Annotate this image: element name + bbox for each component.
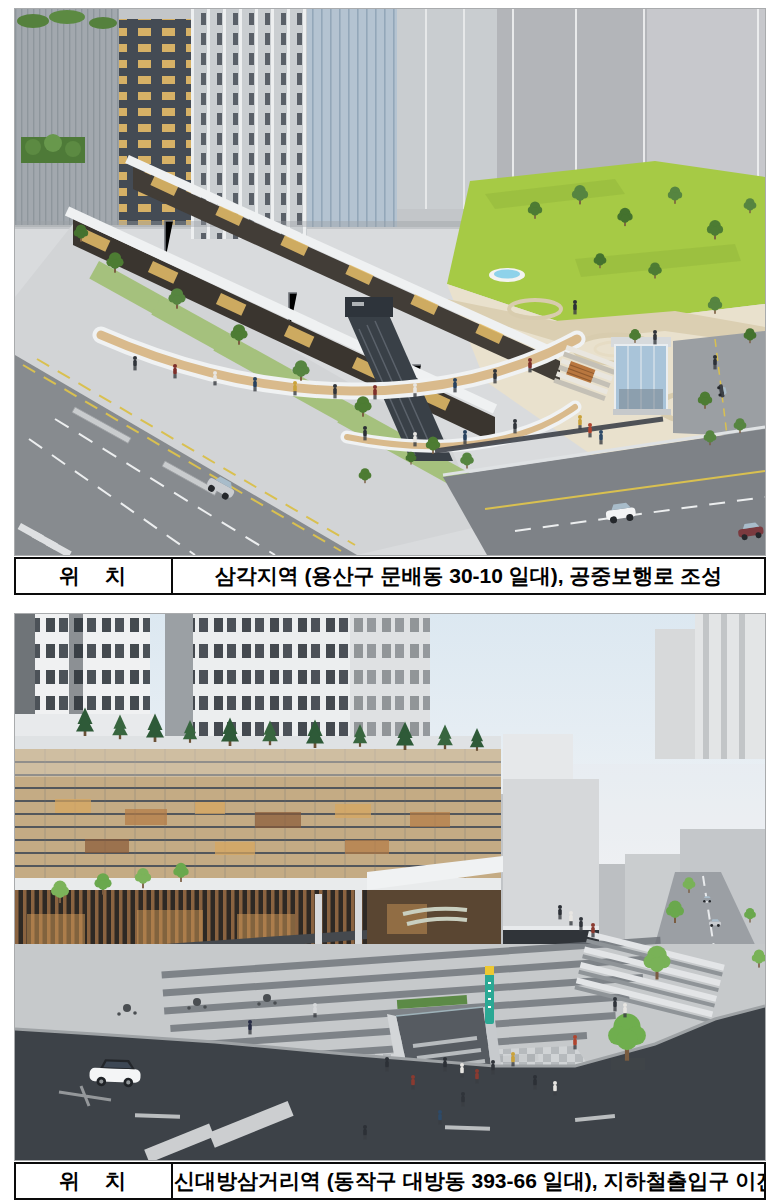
street-render-image xyxy=(14,613,766,1161)
fountain-pool xyxy=(489,268,525,282)
elevator-tower xyxy=(611,337,671,415)
side-street xyxy=(673,331,765,442)
table-row: 위 치 삼각지역 (용산구 문배동 30-10 일대), 공중보행로 조성 xyxy=(15,558,765,594)
caption-table-2: 위 치 신대방삼거리역 (동작구 대방동 393-66 일대), 지하철출입구 … xyxy=(14,1162,766,1200)
aerial-render-image xyxy=(14,8,766,556)
street-render-svg xyxy=(15,614,765,1160)
caption-value-1: 삼각지역 (용산구 문배동 30-10 일대), 공중보행로 조성 xyxy=(172,558,765,594)
caption-value-2: 신대방삼거리역 (동작구 대방동 393-66 일대), 지하철출입구 이전 xyxy=(172,1163,765,1199)
aerial-render-svg xyxy=(15,9,765,555)
figure-aerial-render: 위 치 삼각지역 (용산구 문배동 30-10 일대), 공중보행로 조성 xyxy=(14,8,766,595)
table-row: 위 치 신대방삼거리역 (동작구 대방동 393-66 일대), 지하철출입구 … xyxy=(15,1163,765,1199)
subway-sign xyxy=(485,966,494,1024)
caption-table-1: 위 치 삼각지역 (용산구 문배동 30-10 일대), 공중보행로 조성 xyxy=(14,557,766,595)
figure-street-render: 위 치 신대방삼거리역 (동작구 대방동 393-66 일대), 지하철출입구 … xyxy=(14,613,766,1200)
document-page: 위 치 삼각지역 (용산구 문배동 30-10 일대), 공중보행로 조성 xyxy=(0,0,780,1203)
caption-label-2: 위 치 xyxy=(15,1163,172,1199)
caption-label-1: 위 치 xyxy=(15,558,172,594)
